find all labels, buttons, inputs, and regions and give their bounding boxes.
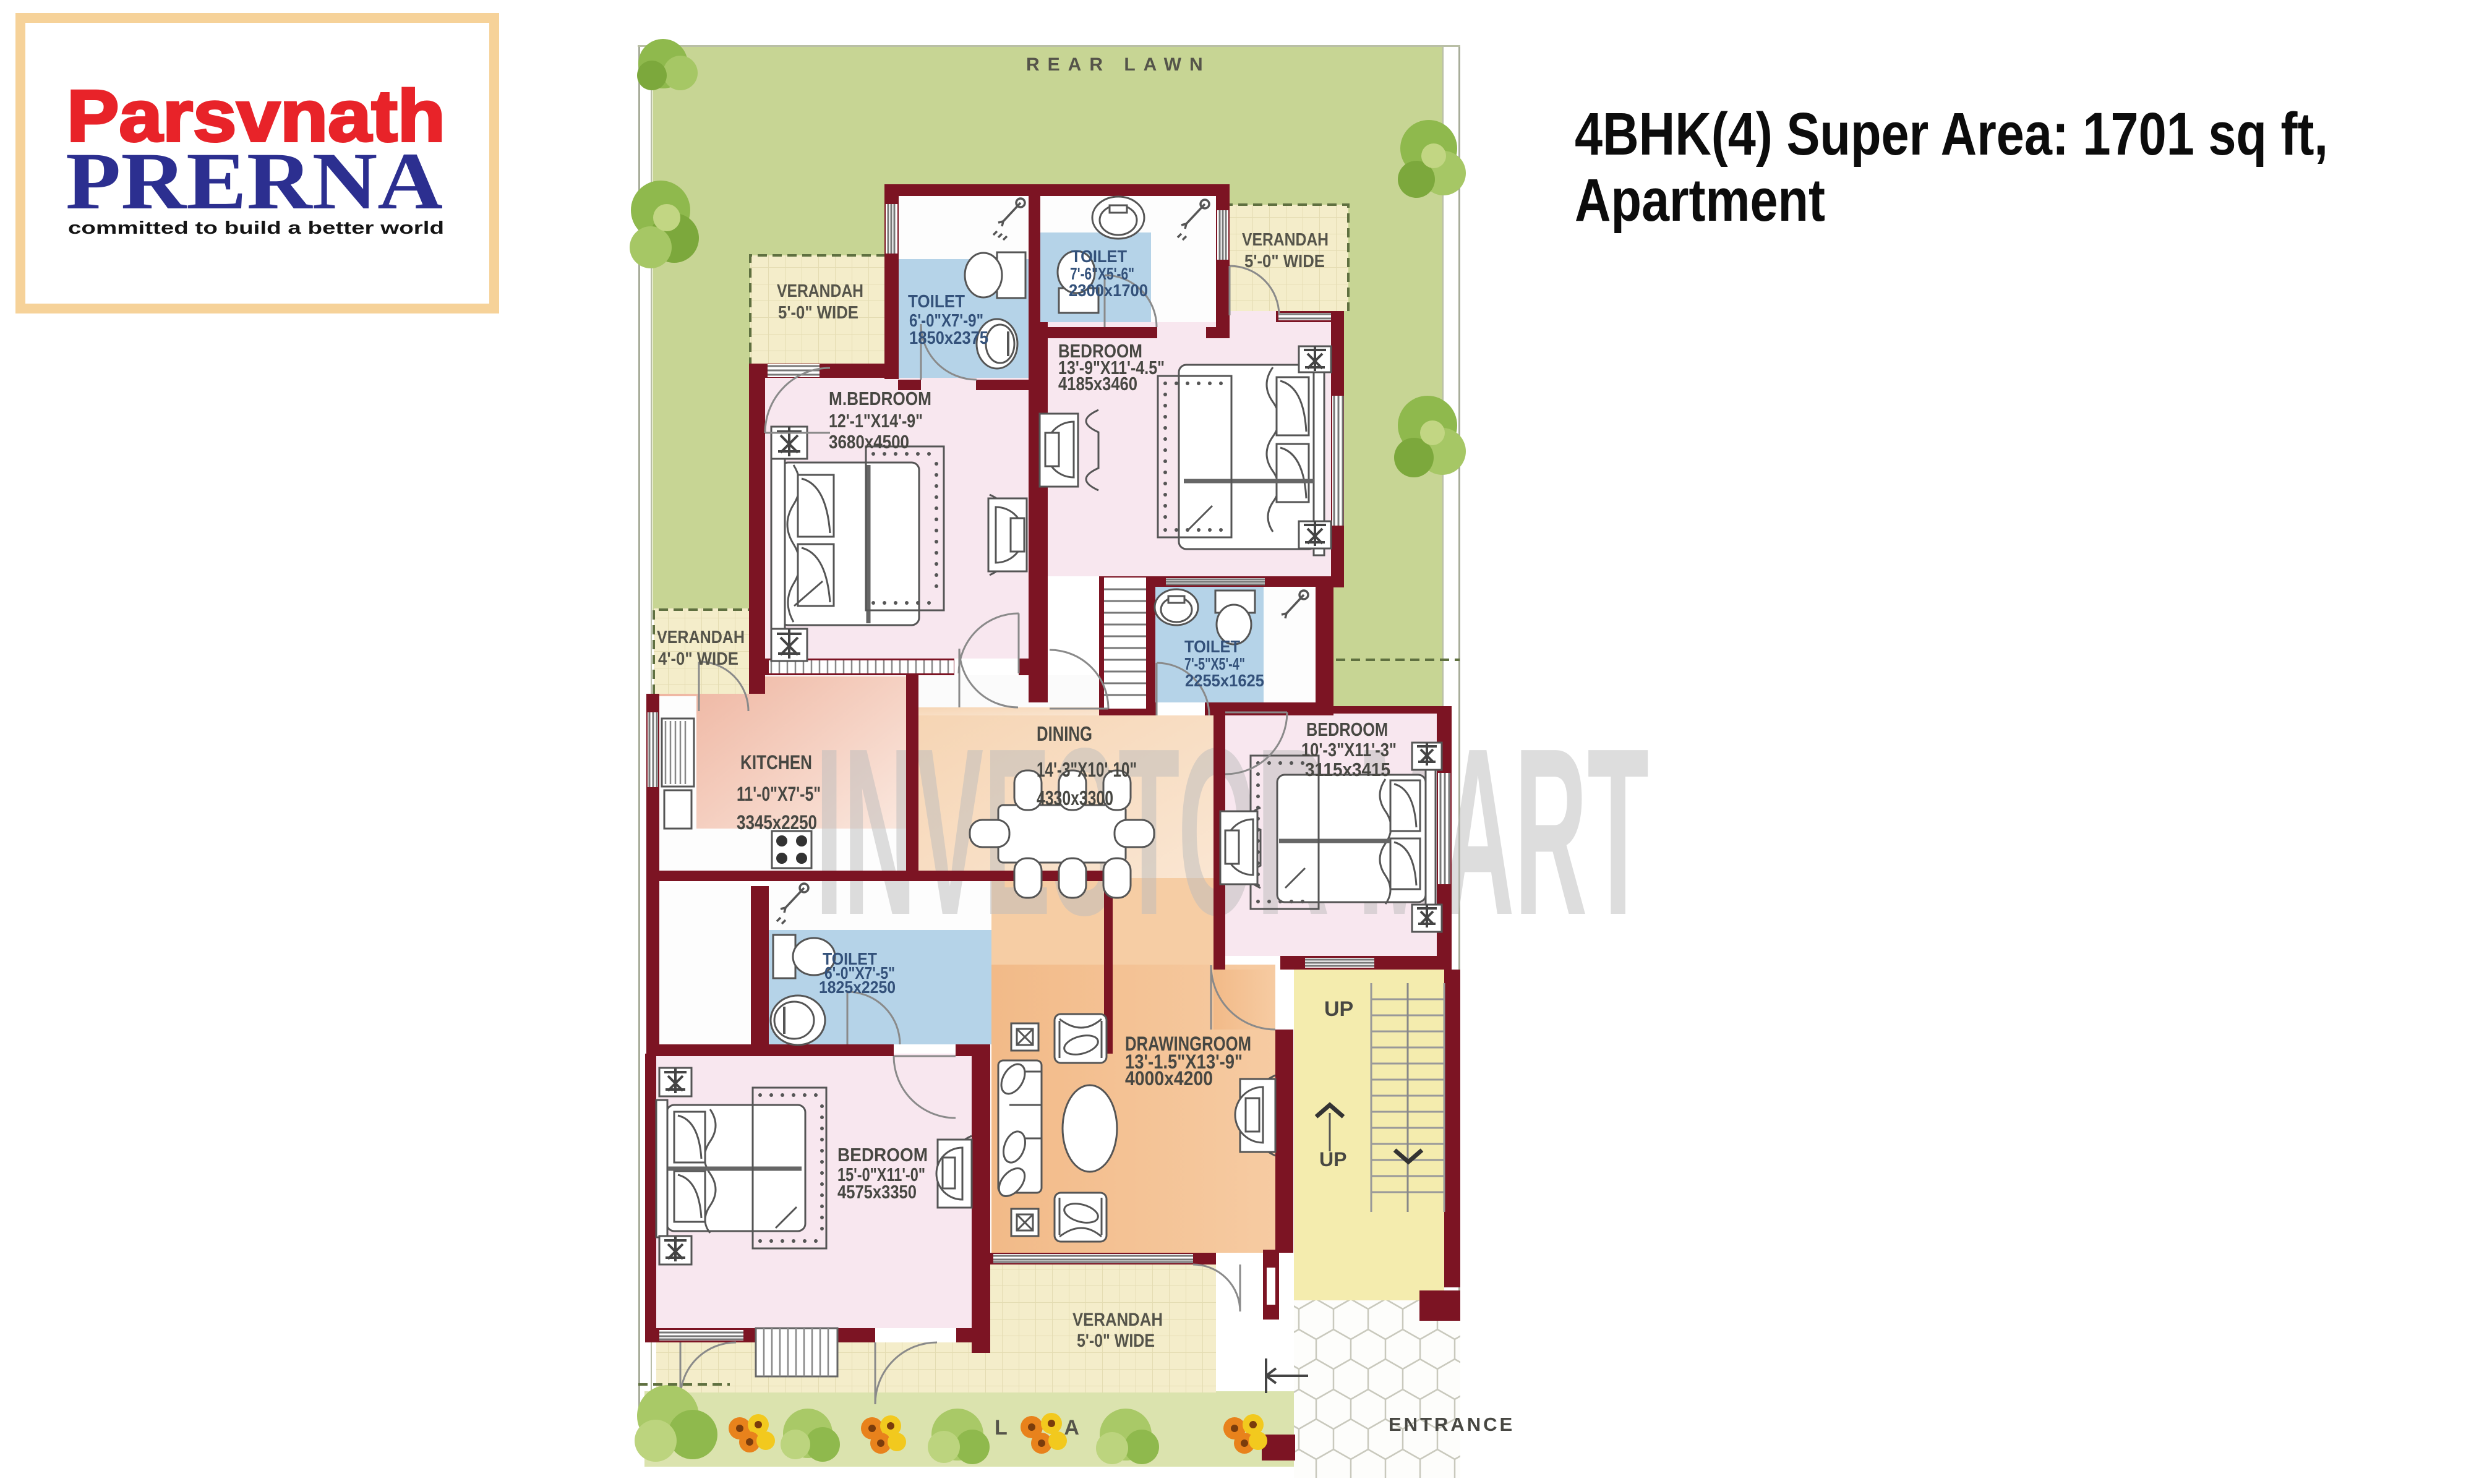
svg-text:TOILET: TOILET — [908, 292, 965, 312]
svg-text:2300x1700: 2300x1700 — [1069, 281, 1148, 300]
svg-text:VERANDAH: VERANDAH — [777, 281, 863, 301]
svg-text:5'-0" WIDE: 5'-0" WIDE — [1244, 252, 1325, 271]
svg-text:4BHK(4) Super Area: 1701 sq ft: 4BHK(4) Super Area: 1701 sq ft, — [1575, 100, 2328, 168]
svg-text:1850x2375: 1850x2375 — [909, 328, 988, 348]
svg-text:UP: UP — [1324, 997, 1353, 1021]
svg-text:REAR LAWN: REAR LAWN — [1026, 54, 1211, 75]
svg-text:14'-3"X10'-10": 14'-3"X10'-10" — [1037, 758, 1137, 781]
svg-text:UP: UP — [1319, 1148, 1346, 1171]
svg-text:5'-0" WIDE: 5'-0" WIDE — [778, 303, 858, 323]
svg-text:11'-0"X7'-5": 11'-0"X7'-5" — [737, 783, 821, 805]
svg-text:4330x3300: 4330x3300 — [1037, 787, 1113, 809]
svg-text:VERANDAH: VERANDAH — [1242, 230, 1329, 250]
svg-text:KITCHEN: KITCHEN — [740, 751, 812, 774]
svg-text:12'-1"X14'-9": 12'-1"X14'-9" — [829, 410, 923, 432]
svg-text:BEDROOM: BEDROOM — [837, 1144, 928, 1166]
svg-text:3115x3415: 3115x3415 — [1305, 759, 1390, 780]
svg-text:BEDROOM: BEDROOM — [1306, 719, 1388, 740]
svg-text:3345x2250: 3345x2250 — [737, 811, 817, 834]
svg-text:VERANDAH: VERANDAH — [1072, 1310, 1163, 1330]
svg-text:Apartment: Apartment — [1575, 166, 1825, 234]
svg-text:PRERNA: PRERNA — [66, 135, 443, 226]
svg-text:M.BEDROOM: M.BEDROOM — [829, 388, 931, 409]
svg-text:4575x3350: 4575x3350 — [837, 1181, 917, 1203]
svg-text:committed to build a better wo: committed to build a better world — [68, 218, 444, 238]
svg-text:4'-0" WIDE: 4'-0" WIDE — [658, 649, 738, 669]
svg-text:TOILET: TOILET — [1071, 247, 1127, 266]
svg-text:ENTRANCE: ENTRANCE — [1389, 1414, 1515, 1435]
svg-text:4000x4200: 4000x4200 — [1125, 1067, 1213, 1090]
svg-text:TOILET: TOILET — [1184, 637, 1240, 656]
svg-text:2255x1625: 2255x1625 — [1185, 671, 1264, 690]
svg-text:5'-0" WIDE: 5'-0" WIDE — [1077, 1331, 1155, 1351]
svg-text:10'-3"X11'-3": 10'-3"X11'-3" — [1301, 739, 1397, 761]
svg-text:DINING: DINING — [1037, 722, 1092, 745]
svg-text:3680x4500: 3680x4500 — [829, 431, 909, 453]
svg-text:1825x2250: 1825x2250 — [819, 978, 896, 997]
svg-text:4185x3460: 4185x3460 — [1058, 373, 1137, 394]
svg-text:VERANDAH: VERANDAH — [657, 628, 745, 647]
